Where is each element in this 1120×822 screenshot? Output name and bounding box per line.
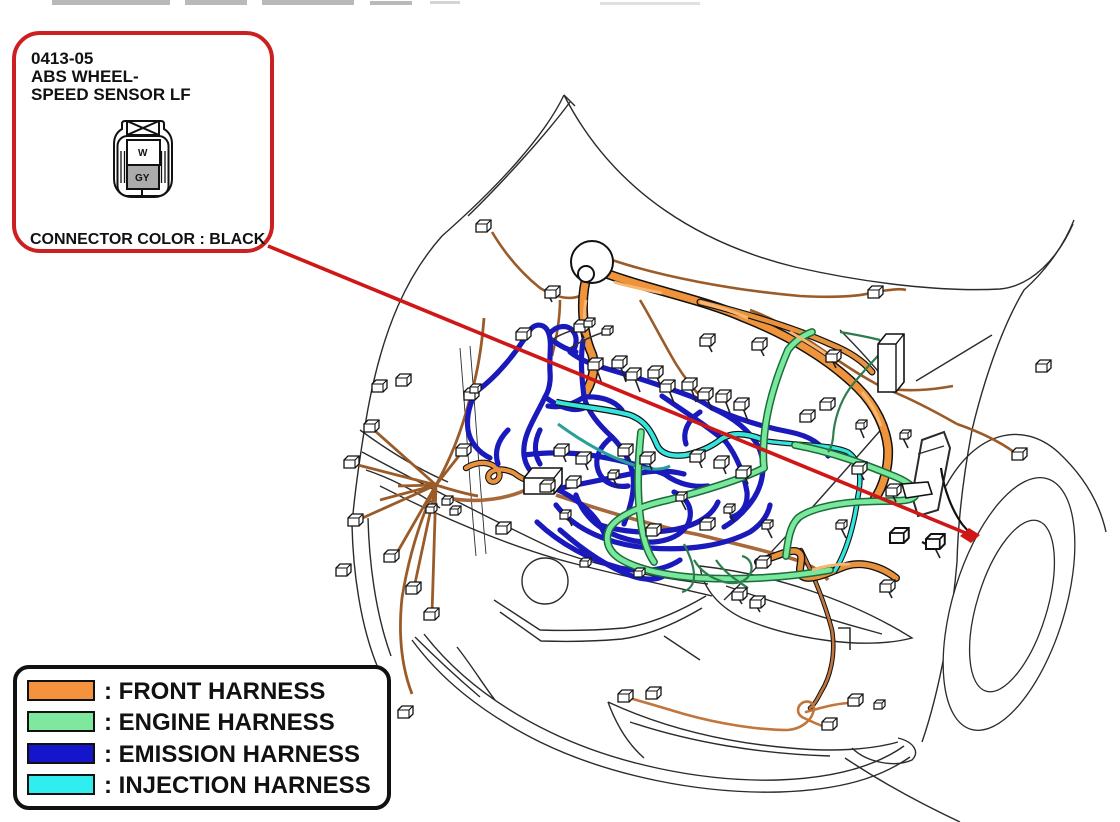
svg-text:: FRONT HARNESS: : FRONT HARNESS: [104, 678, 325, 705]
svg-text:: ENGINE HARNESS: : ENGINE HARNESS: [104, 709, 335, 736]
svg-text:: INJECTION HARNESS: : INJECTION HARNESS: [104, 772, 371, 799]
svg-text:W: W: [138, 148, 148, 159]
svg-text:ABS WHEEL-: ABS WHEEL-: [31, 67, 139, 86]
svg-text:CONNECTOR COLOR : BLACK: CONNECTOR COLOR : BLACK: [30, 231, 266, 248]
svg-text:GY: GY: [135, 173, 150, 184]
svg-text:SPEED SENSOR LF: SPEED SENSOR LF: [31, 85, 191, 104]
svg-text:: EMISSION HARNESS: : EMISSION HARNESS: [104, 741, 360, 768]
svg-text:0413-05: 0413-05: [31, 49, 93, 68]
